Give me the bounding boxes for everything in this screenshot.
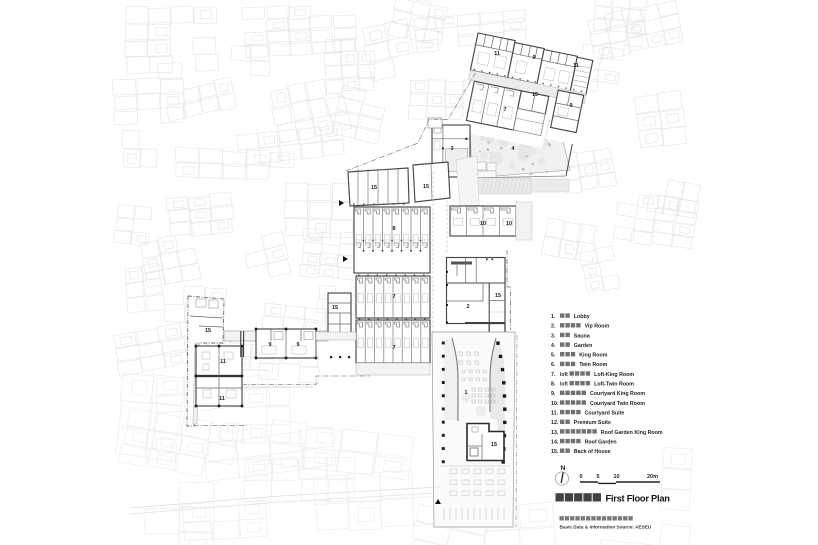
svg-text:15: 15 — [495, 293, 501, 299]
svg-text:loft: loft — [560, 382, 568, 388]
svg-text:Lobby: Lobby — [574, 314, 590, 320]
svg-text:First Floor Plan: First Floor Plan — [606, 494, 671, 504]
svg-text:Courtyard King Room: Courtyard King Room — [590, 391, 645, 397]
svg-text:Back of House: Back of House — [574, 449, 611, 455]
svg-text:20m: 20m — [647, 474, 658, 480]
svg-text:10: 10 — [506, 221, 512, 227]
svg-text:11: 11 — [573, 63, 579, 69]
svg-text:Roof Garden: Roof Garden — [585, 439, 617, 445]
svg-text:10.: 10. — [551, 401, 559, 407]
svg-text:3.: 3. — [551, 333, 556, 339]
svg-text:7: 7 — [392, 345, 395, 351]
svg-text:11: 11 — [219, 396, 225, 402]
svg-text:7: 7 — [392, 294, 395, 300]
svg-text:Courtyard Suite: Courtyard Suite — [585, 411, 625, 417]
svg-text:15: 15 — [371, 185, 377, 191]
svg-text:Basic Data & Information Sourc: Basic Data & Information Source: AESEU — [560, 525, 652, 530]
svg-text:9: 9 — [296, 342, 299, 348]
svg-text:13.: 13. — [551, 430, 559, 436]
svg-text:King Room: King Room — [579, 353, 608, 359]
svg-text:Sauna: Sauna — [574, 333, 590, 339]
svg-text:9: 9 — [532, 55, 535, 61]
svg-text:Vip Room: Vip Room — [585, 324, 610, 330]
svg-text:10: 10 — [613, 474, 619, 480]
svg-text:Twin Room: Twin Room — [579, 362, 607, 368]
svg-text:11.: 11. — [551, 411, 559, 417]
svg-text:2: 2 — [466, 304, 469, 310]
svg-text:12.: 12. — [551, 420, 559, 426]
svg-text:8: 8 — [392, 226, 395, 232]
svg-text:Loft-King Room: Loft-King Room — [594, 372, 634, 378]
svg-text:8.: 8. — [551, 382, 556, 388]
svg-text:15: 15 — [532, 92, 538, 98]
svg-text:1: 1 — [464, 390, 467, 396]
svg-text:14.: 14. — [551, 439, 559, 445]
svg-text:15: 15 — [423, 184, 429, 190]
svg-text:7.: 7. — [551, 372, 556, 378]
svg-text:9: 9 — [268, 342, 271, 348]
svg-text:4.: 4. — [551, 343, 556, 349]
svg-text:7: 7 — [503, 107, 506, 113]
svg-text:1.: 1. — [551, 314, 556, 320]
svg-text:Garden: Garden — [574, 343, 593, 349]
svg-text:15: 15 — [491, 442, 497, 448]
svg-text:0: 0 — [579, 474, 582, 480]
svg-text:11: 11 — [220, 359, 226, 365]
svg-text:loft: loft — [560, 372, 568, 378]
svg-text:15.: 15. — [551, 449, 559, 455]
svg-text:Roof Garden King Room: Roof Garden King Room — [601, 430, 663, 436]
svg-text:3: 3 — [450, 146, 453, 152]
svg-text:10: 10 — [480, 221, 486, 227]
svg-text:6.: 6. — [551, 362, 556, 368]
svg-text:2.: 2. — [551, 324, 556, 330]
svg-text:5.: 5. — [551, 353, 556, 359]
svg-text:15: 15 — [332, 305, 338, 311]
svg-text:5: 5 — [596, 474, 599, 480]
svg-text:9.: 9. — [551, 391, 556, 397]
svg-text:Premium Suite: Premium Suite — [574, 420, 611, 426]
svg-text:N: N — [561, 465, 566, 472]
svg-text:Loft-Twin Room: Loft-Twin Room — [594, 382, 634, 388]
svg-text:Courtyard Twin Room: Courtyard Twin Room — [590, 401, 645, 407]
svg-text:11: 11 — [494, 51, 500, 57]
svg-text:9: 9 — [569, 103, 572, 109]
svg-text:15: 15 — [205, 328, 211, 334]
